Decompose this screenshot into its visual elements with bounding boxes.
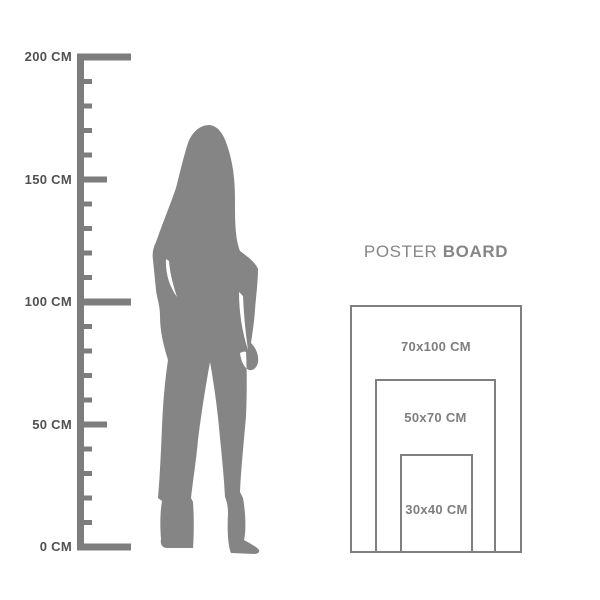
ruler-label-50cm: 50 CM: [0, 418, 72, 432]
height-ruler-icon: [77, 54, 131, 551]
size-guide-diagram: 200 CM 150 CM 100 CM 50 CM 0 CM POSTER B…: [0, 0, 600, 600]
size-label-70x100: 70x100 CM: [350, 340, 522, 354]
ruler-label-0cm: 0 CM: [0, 540, 72, 554]
poster-board-title-bold: BOARD: [443, 242, 508, 261]
person-silhouette-icon: [153, 125, 260, 554]
poster-board-title-regular: POSTER: [364, 242, 438, 261]
size-label-30x40: 30x40 CM: [400, 503, 473, 517]
ruler-label-200cm: 200 CM: [0, 50, 72, 64]
poster-board-title: POSTER BOARD: [350, 242, 522, 262]
ruler-label-150cm: 150 CM: [0, 173, 72, 187]
ruler-label-100cm: 100 CM: [0, 295, 72, 309]
size-label-50x70: 50x70 CM: [375, 411, 496, 425]
